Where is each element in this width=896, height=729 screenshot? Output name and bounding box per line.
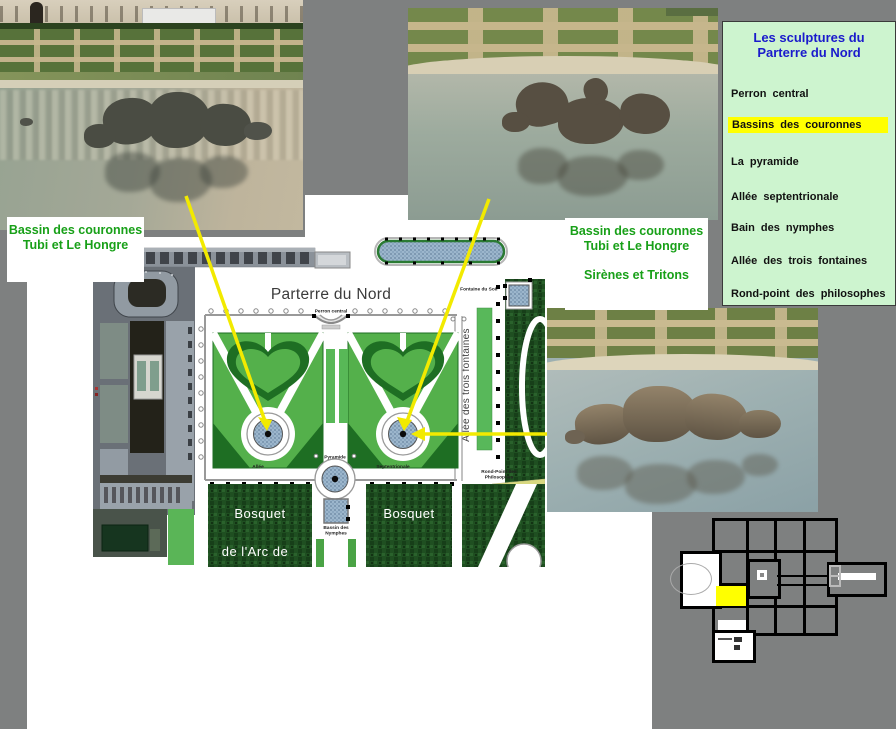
map-label-allee: Allée xyxy=(252,464,264,470)
map-label-septentrionale: Septentrionale xyxy=(376,464,410,470)
callout-line: Tubi et Le Hongre xyxy=(565,239,708,254)
callout-bassin-couronnes-right: Bassin des couronnes Tubi et Le Hongre S… xyxy=(565,218,708,310)
menu-item-bain-des-nymphes[interactable]: Bain des nymphes xyxy=(731,222,834,234)
aerial-north-wing-strip xyxy=(140,248,350,268)
menu-item-allee-septentrionale[interactable]: Allée septentrionale xyxy=(731,191,839,203)
map-title: Parterre du Nord xyxy=(271,286,391,303)
map-label-pyramide: Pyramide xyxy=(324,455,346,461)
photo-bassin-couronnes-west xyxy=(0,0,303,230)
minimap-parterre-ellipse xyxy=(670,563,712,595)
menu-item-la-pyramide[interactable]: La pyramide xyxy=(731,156,799,168)
map-middle-strip-1 xyxy=(326,349,335,423)
map-compartment-left xyxy=(213,333,323,468)
hedge-garden xyxy=(547,308,818,358)
parterre-du-nord-map: Parterre du Nord Fontaine du Soir Allée … xyxy=(90,237,545,567)
sculpture-menu-panel: Les sculptures du Parterre du Nord Perro… xyxy=(722,21,896,306)
minimap-current-location[interactable] xyxy=(716,586,746,606)
hedge-garden xyxy=(0,29,303,74)
tree-line xyxy=(666,8,718,16)
photo-bassin-couronnes-east xyxy=(408,8,718,220)
callout-bassin-couronnes-left: Bassin des couronnes Tubi et Le Hongre xyxy=(7,217,144,282)
callout-line: Tubi et Le Hongre xyxy=(7,238,144,253)
map-label-fontaine-du-soir: Fontaine du Soir xyxy=(460,287,498,293)
map-compartment-right xyxy=(348,333,458,468)
menu-item-perron-central[interactable]: Perron central xyxy=(731,88,809,100)
map-label-nymphes-1: Bassin des xyxy=(323,525,349,531)
map-label-bosquet-right: Bosquet xyxy=(383,506,434,521)
map-label-nymphes-2: Nymphes xyxy=(325,531,347,537)
palace-door xyxy=(30,2,43,25)
map-label-perron: Perron central xyxy=(315,309,348,315)
map-label-allee-trois-fontaines: Allée des trois fontaines xyxy=(461,328,472,442)
menu-item-bassins-couronnes[interactable]: Bassins des couronnes xyxy=(728,117,888,133)
callout-line: Bassin des couronnes xyxy=(565,224,708,239)
map-water-parterre-pool xyxy=(375,238,507,266)
map-label-rond-point-2: Philosophes xyxy=(485,475,514,481)
callout-line: Bassin des couronnes xyxy=(7,223,144,238)
gardens-locator-minimap[interactable] xyxy=(650,505,896,675)
menu-title: Les sculptures du Parterre du Nord xyxy=(727,30,891,60)
menu-item-rond-point-philosophes[interactable]: Rond-point des philosophes xyxy=(731,288,886,300)
menu-item-allee-trois-fontaines[interactable]: Allée des trois fontaines xyxy=(731,255,867,267)
map-label-bosquet-left: Bosquet xyxy=(234,506,285,521)
map-label-rond-point-1: Rond-Point des xyxy=(481,469,517,475)
map-perron-central: Perron central xyxy=(312,309,350,330)
map-bassin-des-nymphes: Bassin des Nymphes xyxy=(317,499,355,537)
aerial-chateau-photo xyxy=(93,267,195,565)
photo-sirenes-et-tritons xyxy=(547,308,818,512)
callout-line: Sirènes et Tritons xyxy=(565,268,708,283)
map-label-arc: de l'Arc de xyxy=(222,544,289,559)
minimap-canal-alley xyxy=(777,575,827,586)
map-middle-strip-2 xyxy=(339,349,348,423)
